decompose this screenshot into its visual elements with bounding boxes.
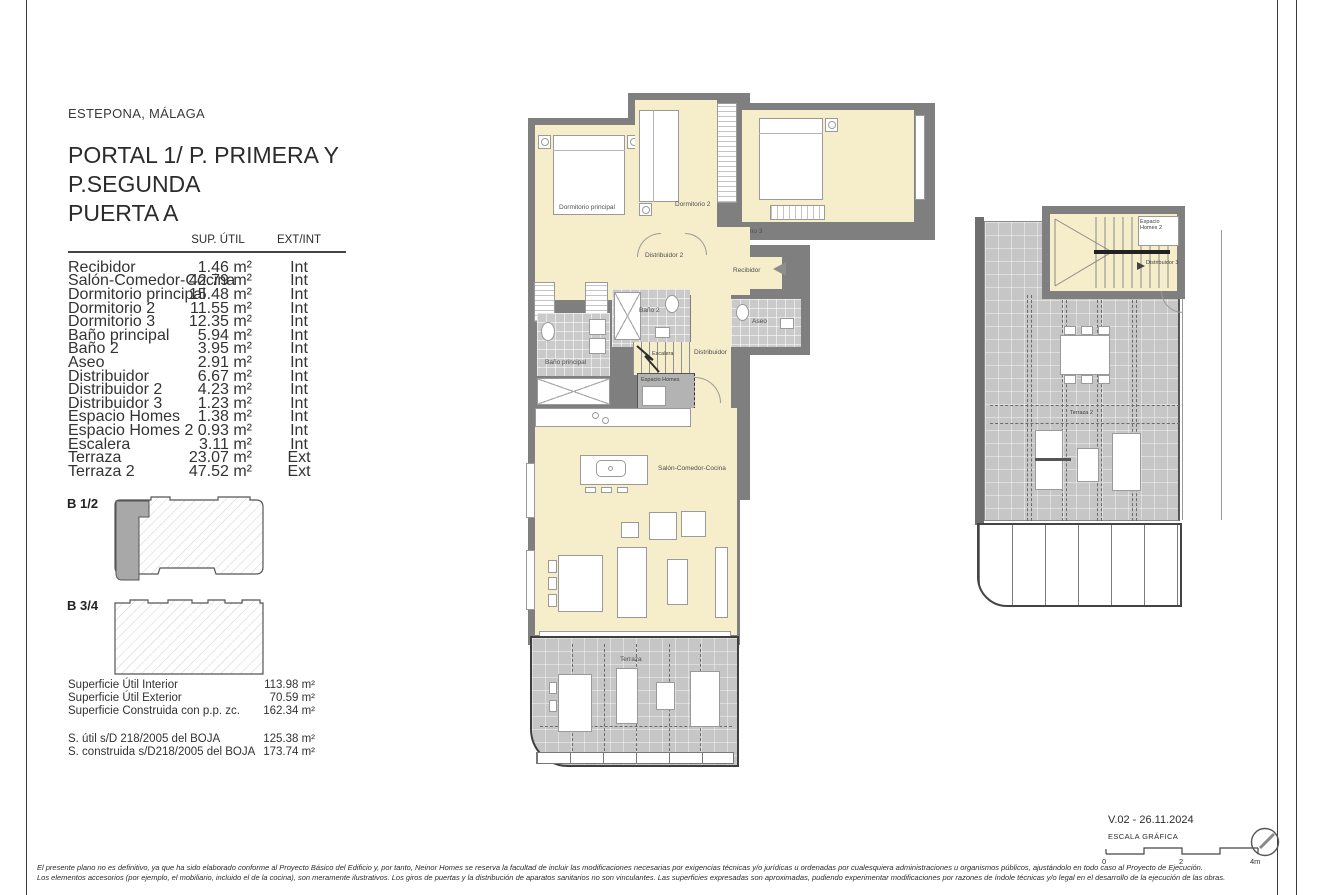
bathtub <box>537 378 610 405</box>
scale-label: ESCALA GRÁFICA <box>1108 832 1178 841</box>
stair-arrow-icon <box>1137 262 1145 270</box>
window <box>526 550 535 610</box>
col-header-sup-util: SUP. ÚTIL <box>184 234 252 246</box>
toilet <box>736 304 749 321</box>
sink <box>780 318 794 329</box>
chair <box>548 594 557 607</box>
room-label: Recibidor <box>733 267 760 274</box>
sideboard <box>667 559 688 605</box>
outdoor-chair <box>1081 326 1093 335</box>
pergola-line <box>990 423 1180 424</box>
room-label: Baño principal <box>545 359 586 366</box>
daybed <box>690 671 720 727</box>
wardrobe <box>770 205 825 220</box>
north-compass-icon <box>1249 826 1281 858</box>
room-label: Escalera <box>652 351 673 357</box>
outdoor-chair <box>1098 326 1110 335</box>
pergola-line <box>604 644 605 756</box>
pergola-line <box>1027 295 1028 521</box>
lamp <box>642 206 650 214</box>
window <box>526 463 535 518</box>
bed-principal <box>553 135 625 215</box>
col-header-ext-int: EXT/INT <box>252 234 346 246</box>
lamp <box>541 138 549 146</box>
side-table <box>621 522 639 538</box>
wall-block <box>975 217 984 525</box>
frame-line-left <box>26 0 27 895</box>
boja-block: S. útil s/D 218/2005 del BOJA125.38 m² S… <box>68 732 315 758</box>
outdoor-chair <box>549 682 557 694</box>
outdoor-chair <box>1098 375 1110 384</box>
divider <box>1035 458 1071 461</box>
summary-block: Superficie Útil Interior113.98 m² Superf… <box>68 678 315 717</box>
tv-bench <box>715 547 728 618</box>
shower <box>614 292 641 340</box>
bed-line <box>653 110 654 202</box>
summary-row: Superficie Útil Interior113.98 m² <box>68 678 315 691</box>
room-label: Espacio Homes 2 <box>1140 219 1178 231</box>
armchair <box>649 512 677 540</box>
location-label: ESTEPONA, MÁLAGA <box>68 106 205 121</box>
bed-line <box>759 133 823 134</box>
side-strip <box>1182 230 1222 520</box>
scale-tick-4: 4m <box>1250 857 1260 866</box>
chair <box>548 560 557 573</box>
summary-row: Superficie Útil Exterior70.59 m² <box>68 691 315 704</box>
pergola-line <box>990 405 1180 406</box>
outdoor-chair <box>549 700 557 712</box>
frame-line-right-outer <box>1296 0 1297 895</box>
sink <box>589 319 606 335</box>
kitchen-counter <box>535 408 691 427</box>
lounger <box>616 668 638 724</box>
room-label: Terraza 2 <box>1070 410 1093 416</box>
pergola-slat-band <box>977 523 1182 607</box>
armchair <box>681 511 706 537</box>
sofa <box>617 547 647 618</box>
stool <box>601 487 612 493</box>
faucet <box>608 466 613 471</box>
frame-line-right-inner <box>1277 0 1278 895</box>
chair <box>548 577 557 590</box>
upper-level-plan: Espacio Homes 2 Distribuidor 3 Terraza 2 <box>965 205 1235 610</box>
areas-table: Recibidor1.46 m²Int Salón-Comedor-Cocina… <box>68 261 346 479</box>
stool <box>617 487 628 493</box>
block-b34-diagram <box>112 594 266 678</box>
room-label: Espacio Homes <box>641 377 680 383</box>
disclaimer-line-2: Los elementos accesorios (por ejemplo, e… <box>37 873 1225 883</box>
outdoor-chair <box>1081 375 1093 384</box>
cooktop-burner <box>602 417 609 424</box>
cooktop-burner <box>592 412 599 419</box>
window <box>915 115 925 200</box>
sink <box>589 338 606 354</box>
disclaimer-line-1: El presente plano no es definitivo, ya q… <box>37 863 1225 873</box>
wardrobe <box>717 103 737 203</box>
outdoor-table <box>558 674 592 732</box>
room-label: Distribuidor <box>694 349 727 356</box>
lamp <box>828 121 836 129</box>
dining-table <box>558 555 603 612</box>
outdoor-side-table <box>656 682 675 710</box>
room-label: Dormitorio 2 <box>675 201 710 208</box>
stair-break-icon <box>633 342 663 375</box>
lounger <box>1112 433 1141 491</box>
room-terraza: Terraza <box>530 636 739 767</box>
summary-row: Superficie Construida con p.p. zc.162.34… <box>68 704 315 717</box>
page-title: PORTAL 1/ P. PRIMERA Y P.SEGUNDA PUERTA … <box>68 141 339 228</box>
title-line-3: PUERTA A <box>68 199 339 228</box>
bed-line <box>553 150 625 151</box>
outdoor-side-table <box>1077 448 1099 482</box>
plan-sheet: ESTEPONA, MÁLAGA PORTAL 1/ P. PRIMERA Y … <box>0 0 1320 895</box>
version-label: V.02 - 26.11.2024 <box>1108 814 1194 826</box>
outdoor-chair <box>1064 375 1076 384</box>
room-label: Distribuidor 3 <box>1146 260 1178 266</box>
sink <box>655 327 670 338</box>
room-label: Terraza <box>620 656 642 663</box>
title-line-1: PORTAL 1/ P. PRIMERA Y <box>68 141 339 170</box>
toilet <box>665 295 679 313</box>
entry-arrow-icon <box>773 262 786 276</box>
block-b12-diagram <box>112 494 266 584</box>
outdoor-chair <box>1064 326 1076 335</box>
room-label: Dormitorio principal <box>559 204 615 211</box>
table-header-rule <box>68 251 346 253</box>
room-label: Aseo <box>752 318 767 325</box>
summary-row: S. construida s/D218/2005 del BOJA173.74… <box>68 745 315 758</box>
cabinet <box>642 386 666 406</box>
areas-table-header: SUP. ÚTIL EXT/INT <box>68 234 346 246</box>
room-label: Baño 2 <box>639 307 660 314</box>
disclaimer: El presente plano no es definitivo, ya q… <box>37 863 1225 883</box>
stool <box>585 487 596 493</box>
outdoor-table <box>1060 335 1110 375</box>
title-line-2: P.SEGUNDA <box>68 170 339 199</box>
main-floor-plan: Dormitorio principal Dormitorio 2 Dormit… <box>525 85 937 785</box>
block-b34-label: B 3/4 <box>67 598 98 613</box>
toilet <box>541 322 555 341</box>
bed-2 <box>639 110 679 202</box>
block-b12-label: B 1/2 <box>67 496 98 511</box>
pergola-line <box>1031 295 1032 521</box>
scale-bar <box>1104 841 1264 857</box>
summary-row: S. útil s/D 218/2005 del BOJA125.38 m² <box>68 732 315 745</box>
pergola-slat-band <box>536 752 734 764</box>
table-row: Terraza 247.52 m²Ext <box>68 465 346 479</box>
room-label: Salón-Comedor-Cocina <box>658 465 726 472</box>
bed-3 <box>759 118 823 200</box>
